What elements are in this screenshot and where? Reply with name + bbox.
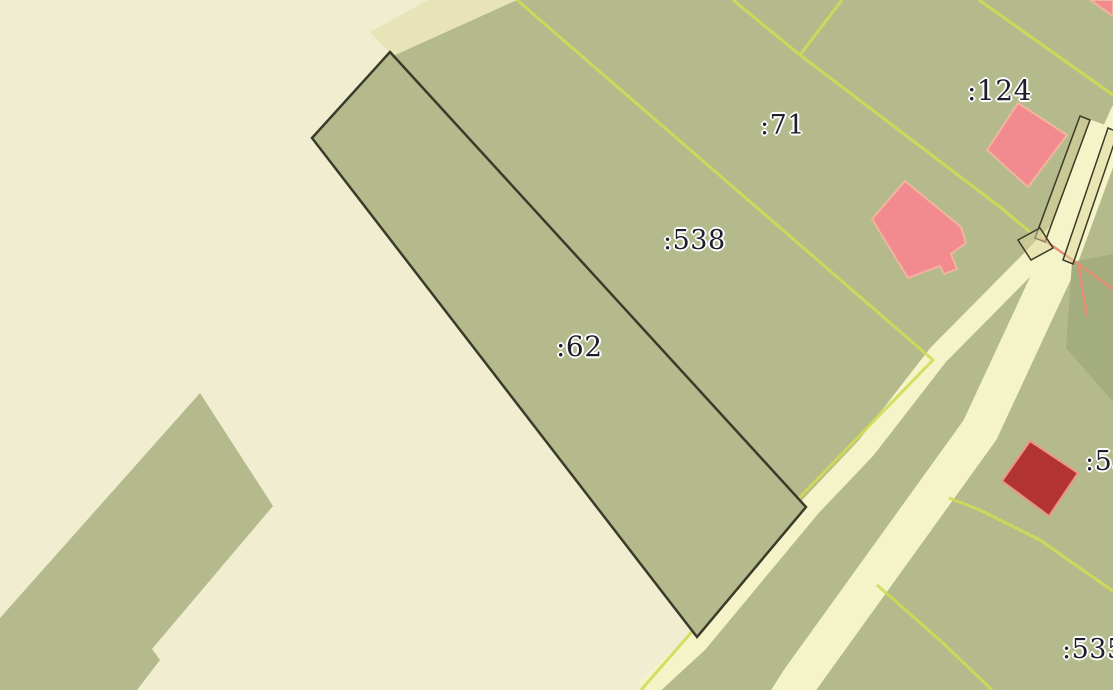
parcel-label-53: :53 bbox=[1085, 446, 1113, 477]
parcel-label-62: :62 bbox=[556, 330, 603, 363]
parcel-southwest-strip[interactable] bbox=[0, 393, 273, 690]
parcel-label-535: :535 bbox=[1062, 634, 1113, 665]
parcel-label-538: :538 bbox=[663, 225, 726, 256]
map-viewport[interactable]: :62 :538 :71 :124 :53 :535 bbox=[0, 0, 1113, 690]
parcel-label-71: :71 bbox=[760, 110, 805, 141]
parcel-label-124: :124 bbox=[967, 74, 1032, 107]
